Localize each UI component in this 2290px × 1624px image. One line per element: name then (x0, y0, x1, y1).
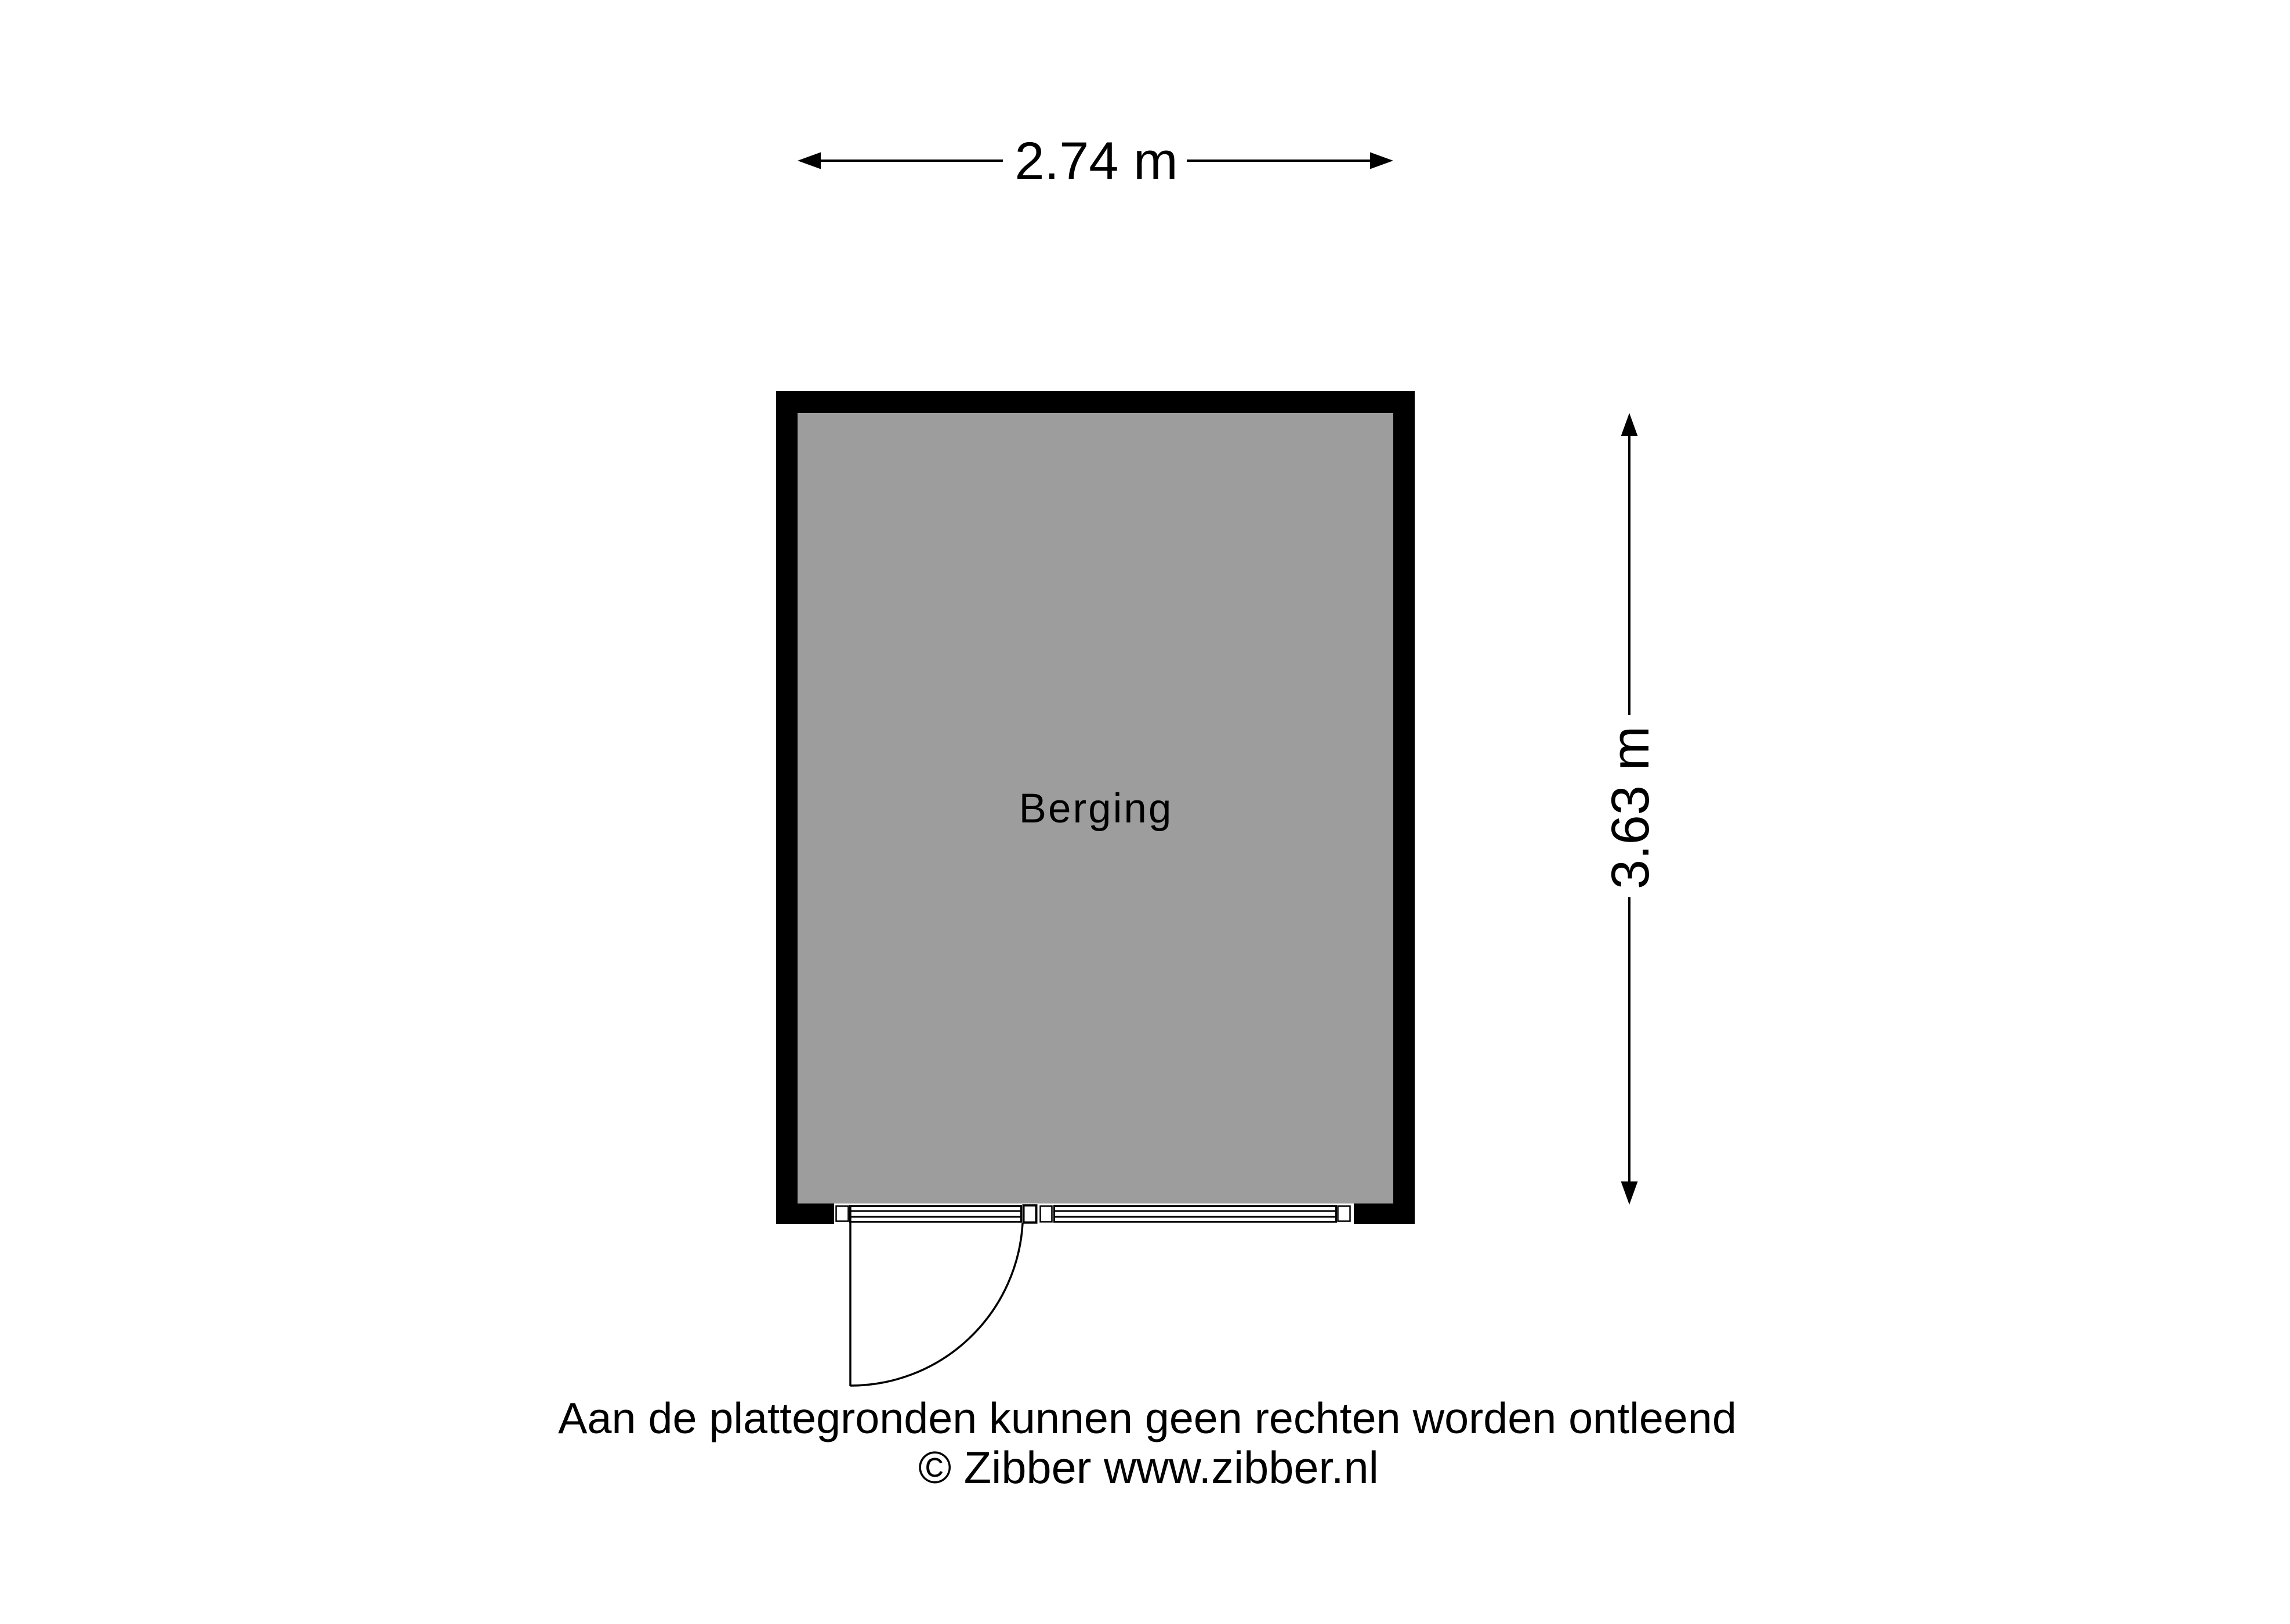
svg-text:2.74 m: 2.74 m (1014, 132, 1177, 191)
svg-text:Berging: Berging (1019, 786, 1173, 832)
svg-text:Aan de plattegronden kunnen ge: Aan de plattegronden kunnen geen rechten… (558, 1394, 1737, 1442)
svg-text:© Zibber www.zibber.nl: © Zibber www.zibber.nl (918, 1443, 1379, 1493)
svg-text:3.63 m: 3.63 m (1601, 726, 1660, 889)
